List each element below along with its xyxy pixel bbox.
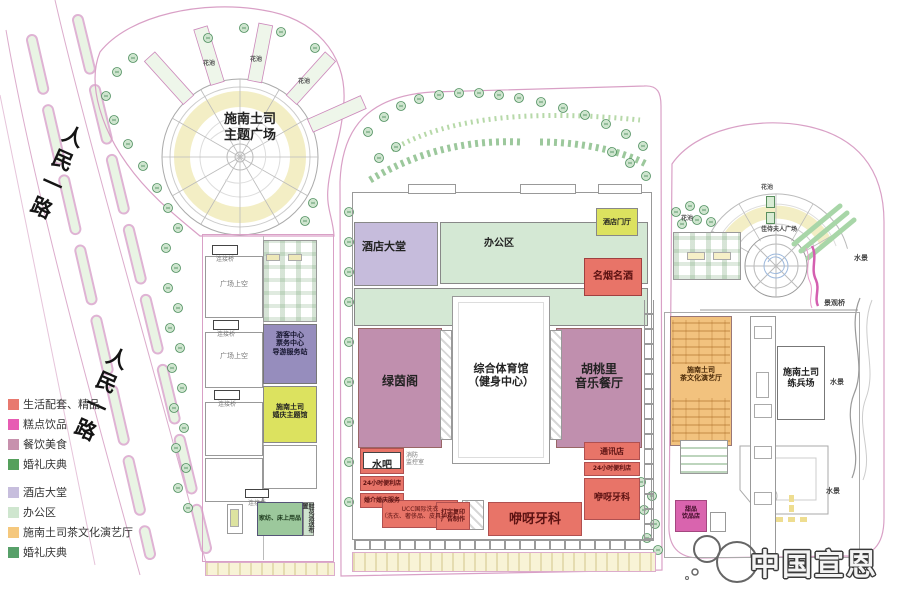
legend-label: 酒店大堂 — [23, 484, 67, 500]
office-label: 办公区 — [484, 238, 514, 250]
hotel-foyer-label: 酒店门厅 — [596, 218, 638, 226]
bridge-label: 连接桥 — [216, 256, 234, 263]
south-walk — [352, 552, 656, 572]
planter — [766, 212, 775, 224]
legend-label: 糕点饮品 — [23, 416, 67, 432]
wedding-hall-label: 施南土司 婚庆主题馆 — [263, 403, 317, 420]
water-feature-label: 水景 — [826, 487, 840, 495]
tea-culture-hall-label: 施南土司 茶文化演艺厅 — [668, 366, 734, 383]
dessert-shop-label: 甜品 饮品店 — [673, 506, 709, 520]
drill-ground-label: 施南土司 练兵场 — [777, 368, 825, 390]
restroom — [710, 512, 726, 532]
fire-control-label: 消防 监控室 — [406, 452, 424, 466]
tourist-center-label: 游客中心 票务中心 导游服务站 — [263, 331, 317, 356]
kiosk — [754, 404, 772, 418]
hotel-lobby-label: 酒店大堂 — [362, 240, 406, 253]
bridge-box: 连接桥 — [213, 320, 239, 330]
room — [263, 445, 317, 489]
flower-bed-label: 花池 — [681, 215, 693, 222]
walkway — [750, 316, 776, 558]
telecom-label: 通讯店 — [584, 447, 640, 457]
flower-service-strip: 鲜花派送布置 — [303, 502, 314, 536]
legend-label: 办公区 — [23, 504, 56, 520]
tea-hall-tables — [672, 398, 730, 442]
tobacco-wine-label: 名烟名酒 — [584, 271, 642, 283]
legend-swatch — [8, 399, 19, 410]
bridge-box: 连接桥 — [214, 390, 240, 400]
table — [288, 254, 302, 261]
sidewalk — [205, 562, 335, 576]
legend-label: 餐饮美食 — [23, 436, 67, 452]
gym-label: 综合体育馆 （健身中心） — [452, 362, 550, 388]
legend-item: 糕点饮品 — [8, 416, 133, 432]
convenience-store-label: 24小时便利店 — [358, 480, 406, 487]
convenience-store-label: 24小时便利店 — [584, 465, 640, 472]
hotel-lobby-zone — [354, 222, 438, 286]
legend-swatch — [8, 527, 19, 538]
legend-label: 婚礼庆典 — [23, 544, 67, 560]
legend-swatch — [8, 459, 19, 470]
legend-item: 生活配套、精品 — [8, 396, 133, 412]
site-plan: 连接桥 连接桥 连接桥 连接桥 广场上空 广场上空 游客中心 票务中心 导游服务… — [0, 0, 900, 590]
kiosk — [754, 492, 772, 505]
plaza-above-label: 广场上空 — [205, 352, 263, 360]
kiosk — [754, 326, 772, 339]
fixture — [230, 509, 239, 527]
flower-bed-label: 花池 — [761, 184, 773, 191]
bridge-label: 连接桥 — [218, 401, 236, 408]
kiosk — [756, 372, 769, 398]
flower-bed-label: 花池 — [298, 78, 310, 85]
legend-swatch — [8, 439, 19, 450]
legend-label: 婚礼庆典 — [23, 456, 67, 472]
water-feature-label: 水景 — [854, 254, 868, 262]
legend-swatch — [8, 419, 19, 430]
luyin-pavilion-label: 绿茵阁 — [358, 374, 442, 388]
roof-block — [520, 184, 576, 194]
table — [713, 252, 731, 260]
flower-bed-label: 花池 — [203, 60, 215, 67]
theme-plaza-label: 施南土司 主题广场 — [224, 112, 276, 143]
legend-item: 施南土司茶文化演艺厅 — [8, 524, 133, 540]
water-bar-label: 水吧 — [372, 460, 392, 471]
legend-item: 餐饮美食 — [8, 436, 133, 452]
green-table-room — [680, 440, 728, 474]
water-bar-box: 水吧 — [363, 452, 401, 469]
room — [205, 402, 263, 456]
table — [266, 254, 280, 261]
legend-label: 施南土司茶文化演艺厅 — [23, 524, 133, 540]
east-arcade — [644, 300, 654, 540]
water-feature-label: 水景 — [830, 378, 844, 386]
kiosk — [754, 446, 772, 459]
legend-item: 婚礼庆典 — [8, 544, 133, 560]
legend-swatch — [8, 547, 19, 558]
roof-block — [408, 184, 456, 194]
lady-plaza-label: 佳侍夫人广场 — [748, 226, 810, 233]
dental-clinic-label: 咿呀牙科 — [584, 493, 640, 504]
roof-block — [598, 184, 642, 194]
watermark-text: 中国宣恩网 — [750, 540, 900, 590]
tea-hall-tables — [672, 320, 730, 364]
bridge-box: 连接桥 — [212, 245, 238, 255]
landscape-bridge-label: 景观桥 — [824, 299, 845, 307]
colonnade — [354, 540, 654, 550]
print-shop-label: 打字复印 广告制作 — [436, 509, 470, 523]
bridge-label: 连接桥 — [217, 331, 235, 338]
room-block — [263, 240, 317, 322]
hutaoli-label: 胡桃里 音乐餐厅 — [556, 362, 642, 391]
flower-bed-label: 花池 — [250, 56, 262, 63]
legend: 生活配套、精品糕点饮品餐饮美食婚礼庆典酒店大堂办公区施南土司茶文化演艺厅婚礼庆典 — [8, 396, 133, 564]
legend-item: 办公区 — [8, 504, 133, 520]
plaza-above-label: 广场上空 — [205, 280, 263, 288]
bridge-box: 连接桥 — [245, 489, 269, 498]
legend-label: 生活配套、精品 — [23, 396, 100, 412]
matchmaking-label: 婚介婚庆服务 — [358, 497, 406, 504]
home-textiles-label: 家纺、床上用品 — [256, 515, 304, 522]
legend-item: 酒店大堂 — [8, 484, 133, 500]
table — [687, 252, 705, 260]
legend-swatch — [8, 487, 19, 498]
planter — [766, 196, 775, 208]
legend-swatch — [8, 507, 19, 518]
legend-item: 婚礼庆典 — [8, 456, 133, 472]
dental-clinic-label: 咿呀牙科 — [488, 512, 582, 528]
